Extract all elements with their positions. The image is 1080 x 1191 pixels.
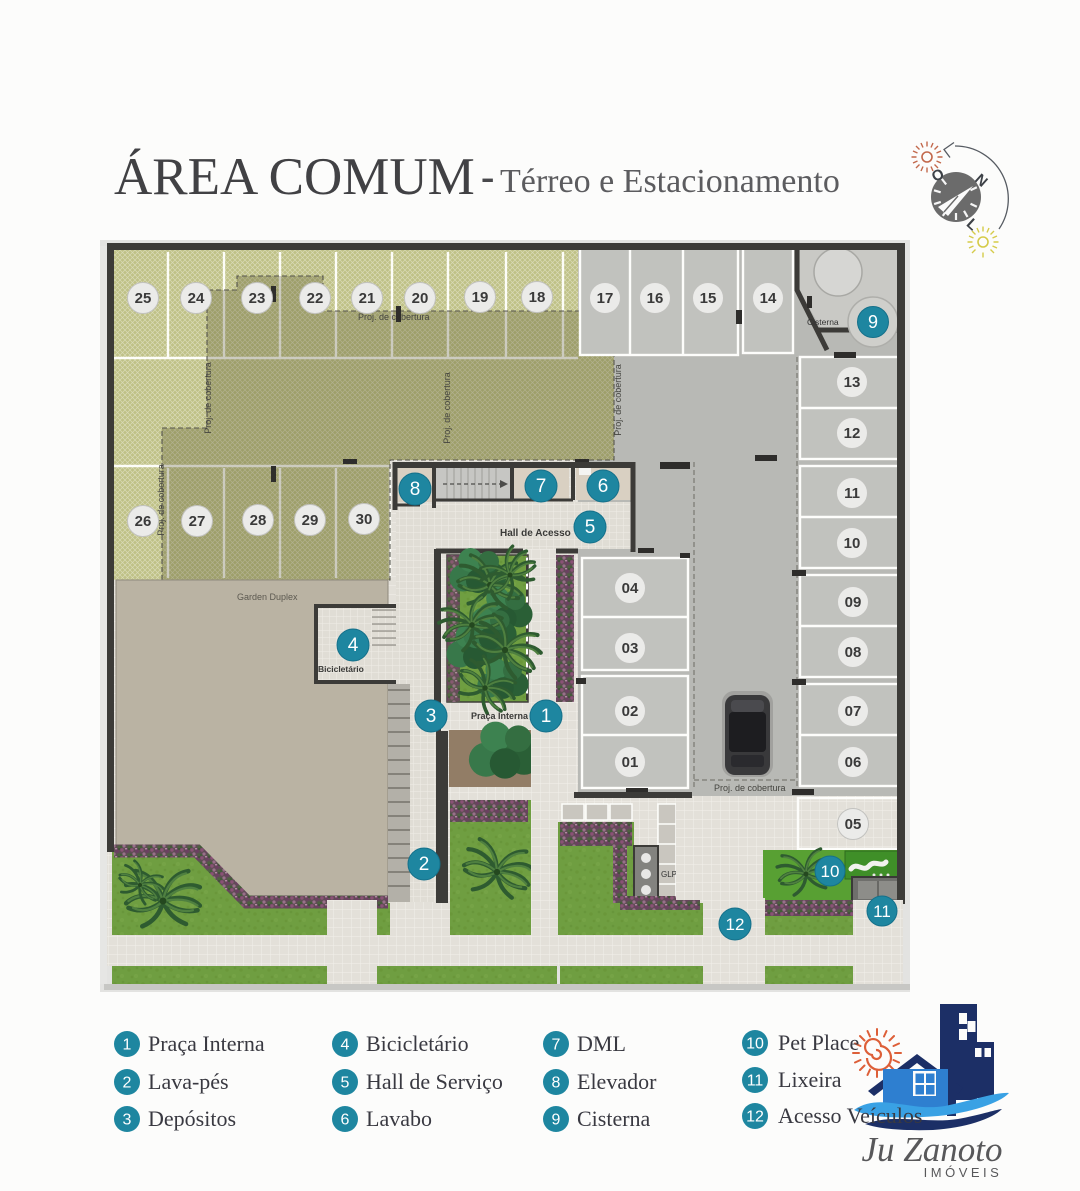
svg-text:7: 7 (552, 1037, 561, 1054)
svg-text:10: 10 (746, 1036, 764, 1053)
svg-text:Garden Duplex: Garden Duplex (237, 592, 298, 602)
svg-text:Bicicletário: Bicicletário (318, 664, 364, 674)
svg-text:19: 19 (472, 289, 489, 306)
svg-text:Cisterna: Cisterna (577, 1106, 651, 1131)
svg-text:8: 8 (410, 479, 421, 500)
svg-text:27: 27 (189, 513, 206, 530)
svg-text:1: 1 (541, 706, 552, 727)
svg-text:DML: DML (577, 1031, 626, 1056)
svg-text:06: 06 (845, 754, 862, 771)
svg-text:Proj. de cobertura: Proj. de cobertura (613, 364, 623, 436)
svg-text:Cisterna: Cisterna (807, 317, 839, 327)
svg-text:IMÓVEIS: IMÓVEIS (924, 1165, 1003, 1180)
svg-text:9: 9 (868, 312, 878, 332)
svg-text:24: 24 (188, 290, 205, 307)
svg-text:7: 7 (536, 476, 547, 497)
svg-text:16: 16 (647, 290, 664, 307)
svg-text:GLP: GLP (661, 870, 677, 879)
svg-text:8: 8 (552, 1075, 561, 1092)
svg-text:10: 10 (821, 862, 840, 881)
svg-text:Pet Place: Pet Place (778, 1030, 859, 1055)
svg-text:07: 07 (845, 703, 862, 720)
svg-text:22: 22 (307, 290, 324, 307)
svg-text:Proj. de cobertura: Proj. de cobertura (714, 783, 786, 793)
svg-text:Hall de Acesso: Hall de Acesso (500, 528, 571, 539)
svg-text:Praça Interna: Praça Interna (471, 711, 529, 721)
svg-text:18: 18 (529, 289, 546, 306)
svg-text:08: 08 (845, 644, 862, 661)
svg-text:12: 12 (844, 425, 861, 442)
svg-text:Depósitos: Depósitos (148, 1106, 236, 1131)
svg-text:Proj. de cobertura: Proj. de cobertura (203, 362, 213, 434)
svg-text:11: 11 (844, 485, 860, 502)
svg-text:03: 03 (622, 640, 639, 657)
svg-text:12: 12 (746, 1109, 764, 1126)
svg-text:26: 26 (135, 513, 152, 530)
svg-text:21: 21 (359, 290, 376, 307)
svg-text:Lava-pés: Lava-pés (148, 1069, 229, 1094)
svg-text:6: 6 (341, 1112, 350, 1129)
svg-text:9: 9 (552, 1112, 561, 1129)
svg-text:15: 15 (700, 290, 717, 307)
svg-text:Térreo e Estacionamento: Térreo e Estacionamento (500, 163, 840, 200)
svg-text:2: 2 (123, 1075, 132, 1092)
svg-text:6: 6 (598, 476, 609, 497)
svg-text:17: 17 (597, 290, 614, 307)
svg-text:10: 10 (844, 535, 861, 552)
svg-text:1: 1 (123, 1037, 132, 1054)
svg-text:14: 14 (760, 290, 777, 307)
svg-text:Praça Interna: Praça Interna (148, 1031, 265, 1056)
svg-text:Ju Zanoto: Ju Zanoto (862, 1130, 1003, 1169)
svg-text:11: 11 (873, 902, 891, 921)
svg-text:Acesso Veículos: Acesso Veículos (778, 1103, 922, 1128)
svg-text:Hall de Serviço: Hall de Serviço (366, 1069, 503, 1094)
svg-text:23: 23 (249, 290, 266, 307)
svg-text:Bicicletário: Bicicletário (366, 1031, 469, 1056)
svg-text:3: 3 (123, 1112, 132, 1129)
svg-text:ÁREA COMUM: ÁREA COMUM (114, 148, 475, 206)
svg-text:3: 3 (426, 706, 437, 727)
svg-text:Proj. de cobertura: Proj. de cobertura (442, 372, 452, 444)
svg-text:04: 04 (622, 580, 639, 597)
svg-text:13: 13 (844, 374, 861, 391)
svg-text:Lixeira: Lixeira (778, 1067, 842, 1092)
svg-text:2: 2 (419, 854, 430, 875)
svg-text:25: 25 (135, 290, 152, 307)
svg-text:29: 29 (302, 512, 319, 529)
svg-text:30: 30 (356, 511, 373, 528)
svg-text:5: 5 (341, 1075, 350, 1092)
svg-text:05: 05 (845, 816, 862, 833)
svg-text:-: - (481, 154, 494, 199)
svg-text:5: 5 (585, 517, 596, 538)
svg-text:20: 20 (412, 290, 429, 307)
svg-text:4: 4 (341, 1037, 350, 1054)
svg-text:Elevador: Elevador (577, 1069, 657, 1094)
svg-text:11: 11 (747, 1073, 764, 1090)
svg-text:01: 01 (622, 754, 639, 771)
svg-text:12: 12 (726, 915, 745, 934)
svg-text:Lavabo: Lavabo (366, 1106, 432, 1131)
svg-text:02: 02 (622, 703, 639, 720)
svg-text:09: 09 (845, 594, 862, 611)
svg-text:28: 28 (250, 512, 267, 529)
svg-text:4: 4 (348, 635, 359, 656)
